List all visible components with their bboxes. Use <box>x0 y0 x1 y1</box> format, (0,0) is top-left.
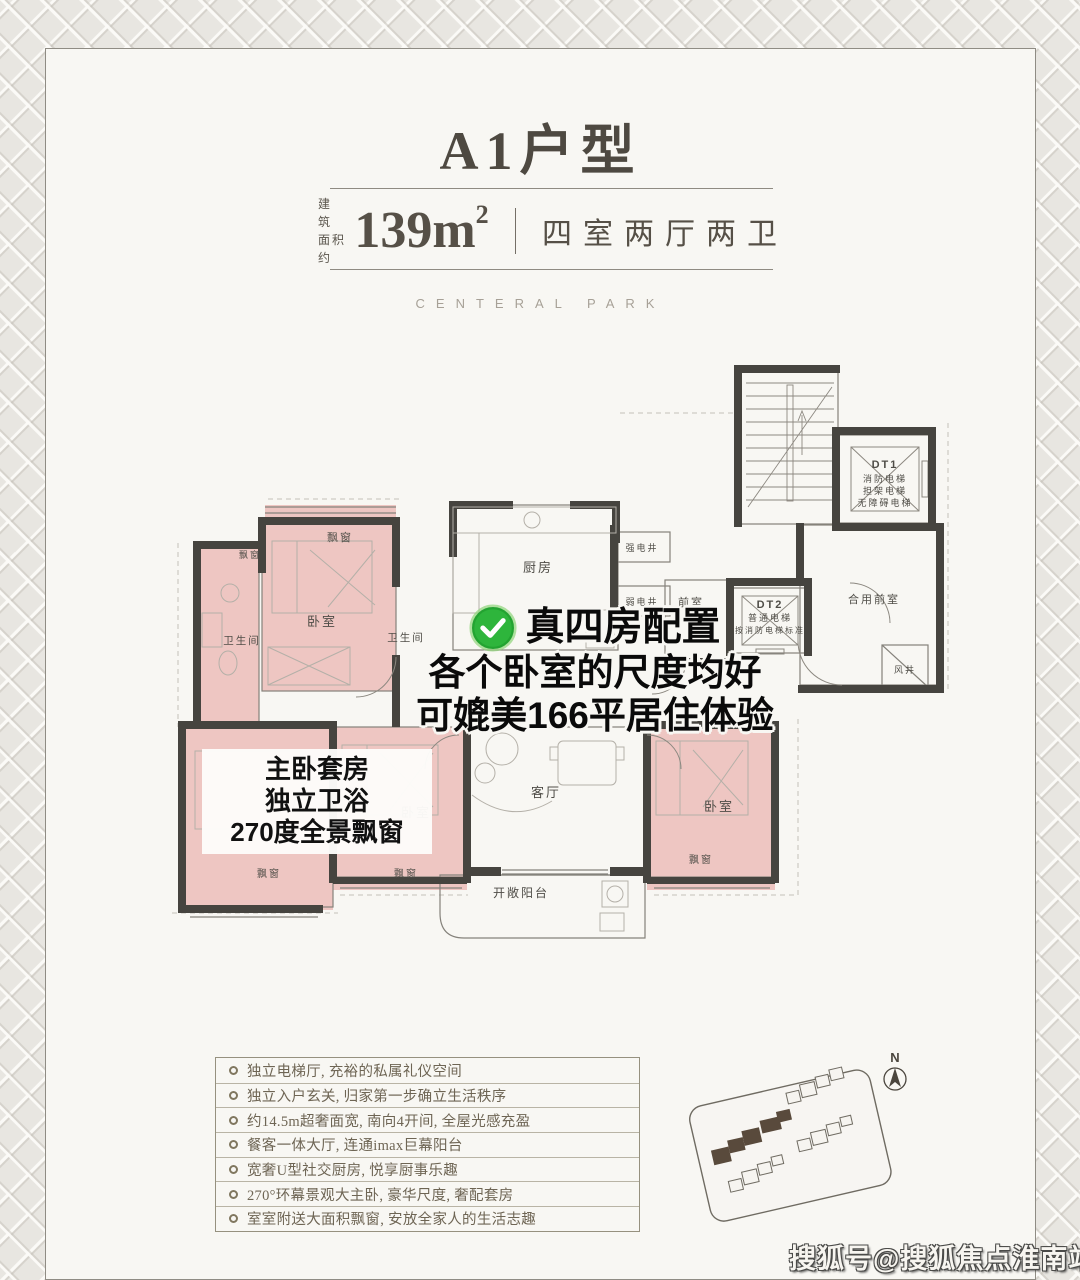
room-label-bathroom-left: 卫生间 <box>223 634 261 647</box>
site-boundary <box>688 1061 894 1223</box>
feature-row: 室室附送大面积飘窗, 安放全家人的生活志趣 <box>216 1206 639 1231</box>
feature-text: 270°环幕景观大主卧, 豪华尺度, 奢配套房 <box>247 1184 513 1205</box>
area-value: 139m <box>354 205 475 257</box>
bullet-icon <box>229 1116 238 1125</box>
bullet-icon <box>229 1214 238 1223</box>
room-label-bay-window-top: 飘窗 <box>327 530 353 544</box>
feature-text: 餐客一体大厅, 连通imax巨幕阳台 <box>247 1134 463 1155</box>
elevator-dt1-name: DT1 <box>872 459 899 471</box>
feature-text: 宽奢U型社交厨房, 悦享厨事乐趣 <box>247 1159 458 1180</box>
header-rule-top <box>330 188 773 189</box>
check-callout-line3: 可媲美166平居住体验 <box>383 695 807 738</box>
room-label-bay-window-bc: 飘窗 <box>394 867 418 880</box>
feature-text: 独立电梯厅, 充裕的私属礼仪空间 <box>247 1060 462 1081</box>
room-label-living-room: 客厅 <box>531 785 561 800</box>
room-label-bay-window-left: 飘窗 <box>239 549 261 560</box>
bullet-icon <box>229 1066 238 1075</box>
room-label-bay-window-br: 飘窗 <box>689 853 713 866</box>
bullet-icon <box>229 1091 238 1100</box>
elevator-dt1-line3: 无障碍电梯 <box>857 497 912 508</box>
feature-row: 约14.5m超奢面宽, 南向4开间, 全屋光感充盈 <box>216 1107 639 1132</box>
site-plan: N <box>688 1046 923 1231</box>
master-callout-line2: 独立卫浴 <box>204 786 430 818</box>
feature-row: 餐客一体大厅, 连通imax巨幕阳台 <box>216 1132 639 1157</box>
area-prefix-line1: 建 筑 <box>318 195 346 231</box>
check-callout-line2: 各个卧室的尺度均好 <box>383 652 807 695</box>
compass-north-label: N <box>890 1050 899 1065</box>
floorplan-poster: { "header": { "title": "A1户型", "area_pre… <box>0 0 1080 1280</box>
bullet-icon <box>229 1165 238 1174</box>
area-prefix-line2: 面积约 <box>318 231 346 267</box>
room-label-bedroom-topleft: 卧室 <box>307 614 337 629</box>
staircase <box>746 383 834 507</box>
feature-row: 独立电梯厅, 充裕的私属礼仪空间 <box>216 1058 639 1083</box>
room-label-wind-shaft: 风井 <box>894 664 916 675</box>
feature-row: 独立入户玄关, 归家第一步确立生活秩序 <box>216 1083 639 1108</box>
feature-list: 独立电梯厅, 充裕的私属礼仪空间 独立入户玄关, 归家第一步确立生活秩序 约14… <box>215 1057 640 1232</box>
room-label-bay-window-bl: 飘窗 <box>257 867 281 880</box>
room-label-shared-front-room: 合用前室 <box>848 592 900 606</box>
room-label-kitchen: 厨房 <box>523 560 553 575</box>
room-label-bedroom-right: 卧室 <box>704 799 734 814</box>
watermark: 搜狐号@搜狐焦点淮南站 <box>789 1237 1080 1276</box>
check-callout: 真四房配置 各个卧室的尺度均好 可媲美166平居住体验 <box>383 604 807 738</box>
header-rule-bottom <box>330 269 773 270</box>
bullet-icon <box>229 1190 238 1199</box>
master-suite-callout: 主卧套房 独立卫浴 270度全景飘窗 <box>202 749 432 854</box>
area-prefix-label: 建 筑 面积约 <box>318 195 346 267</box>
plan-title: A1户型 <box>45 106 1036 185</box>
master-callout-line1: 主卧套房 <box>204 754 430 786</box>
compass-icon <box>884 1068 906 1090</box>
check-icon <box>469 604 517 652</box>
area-spec-row: 建 筑 面积约 139m 2 四室两厅两卫 <box>318 201 788 261</box>
feature-row: 270°环幕景观大主卧, 豪华尺度, 奢配套房 <box>216 1181 639 1206</box>
feature-text: 约14.5m超奢面宽, 南向4开间, 全屋光感充盈 <box>247 1110 530 1131</box>
check-callout-line1: 真四房配置 <box>525 605 720 650</box>
elevator-dt1-line1: 消防电梯 <box>863 473 907 484</box>
rooms-spec: 四室两厅两卫 <box>542 209 788 253</box>
master-callout-line3: 270度全景飘窗 <box>204 817 430 849</box>
room-label-balcony: 开敞阳台 <box>493 885 549 900</box>
feature-text: 独立入户玄关, 归家第一步确立生活秩序 <box>247 1085 506 1106</box>
room-label-strong-shaft: 强电井 <box>625 542 658 553</box>
area-superscript: 2 <box>476 200 489 230</box>
feature-row: 宽奢U型社交厨房, 悦享厨事乐趣 <box>216 1157 639 1182</box>
elevator-dt1-line2: 担架电梯 <box>863 485 907 496</box>
bullet-icon <box>229 1140 238 1149</box>
brand-text: CENTERAL PARK <box>45 296 1036 311</box>
feature-text: 室室附送大面积飘窗, 安放全家人的生活志趣 <box>247 1208 536 1229</box>
header-divider <box>515 208 516 254</box>
